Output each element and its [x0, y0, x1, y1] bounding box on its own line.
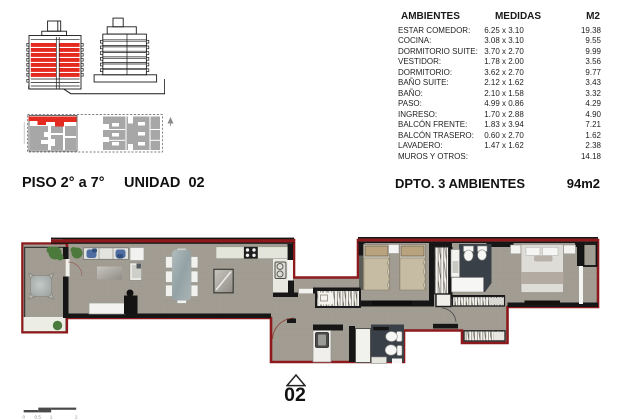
svg-text:0: 0	[23, 415, 26, 420]
svg-text:0.5: 0.5	[35, 415, 42, 420]
svg-text:1: 1	[50, 415, 53, 420]
svg-text:2: 2	[75, 415, 78, 420]
